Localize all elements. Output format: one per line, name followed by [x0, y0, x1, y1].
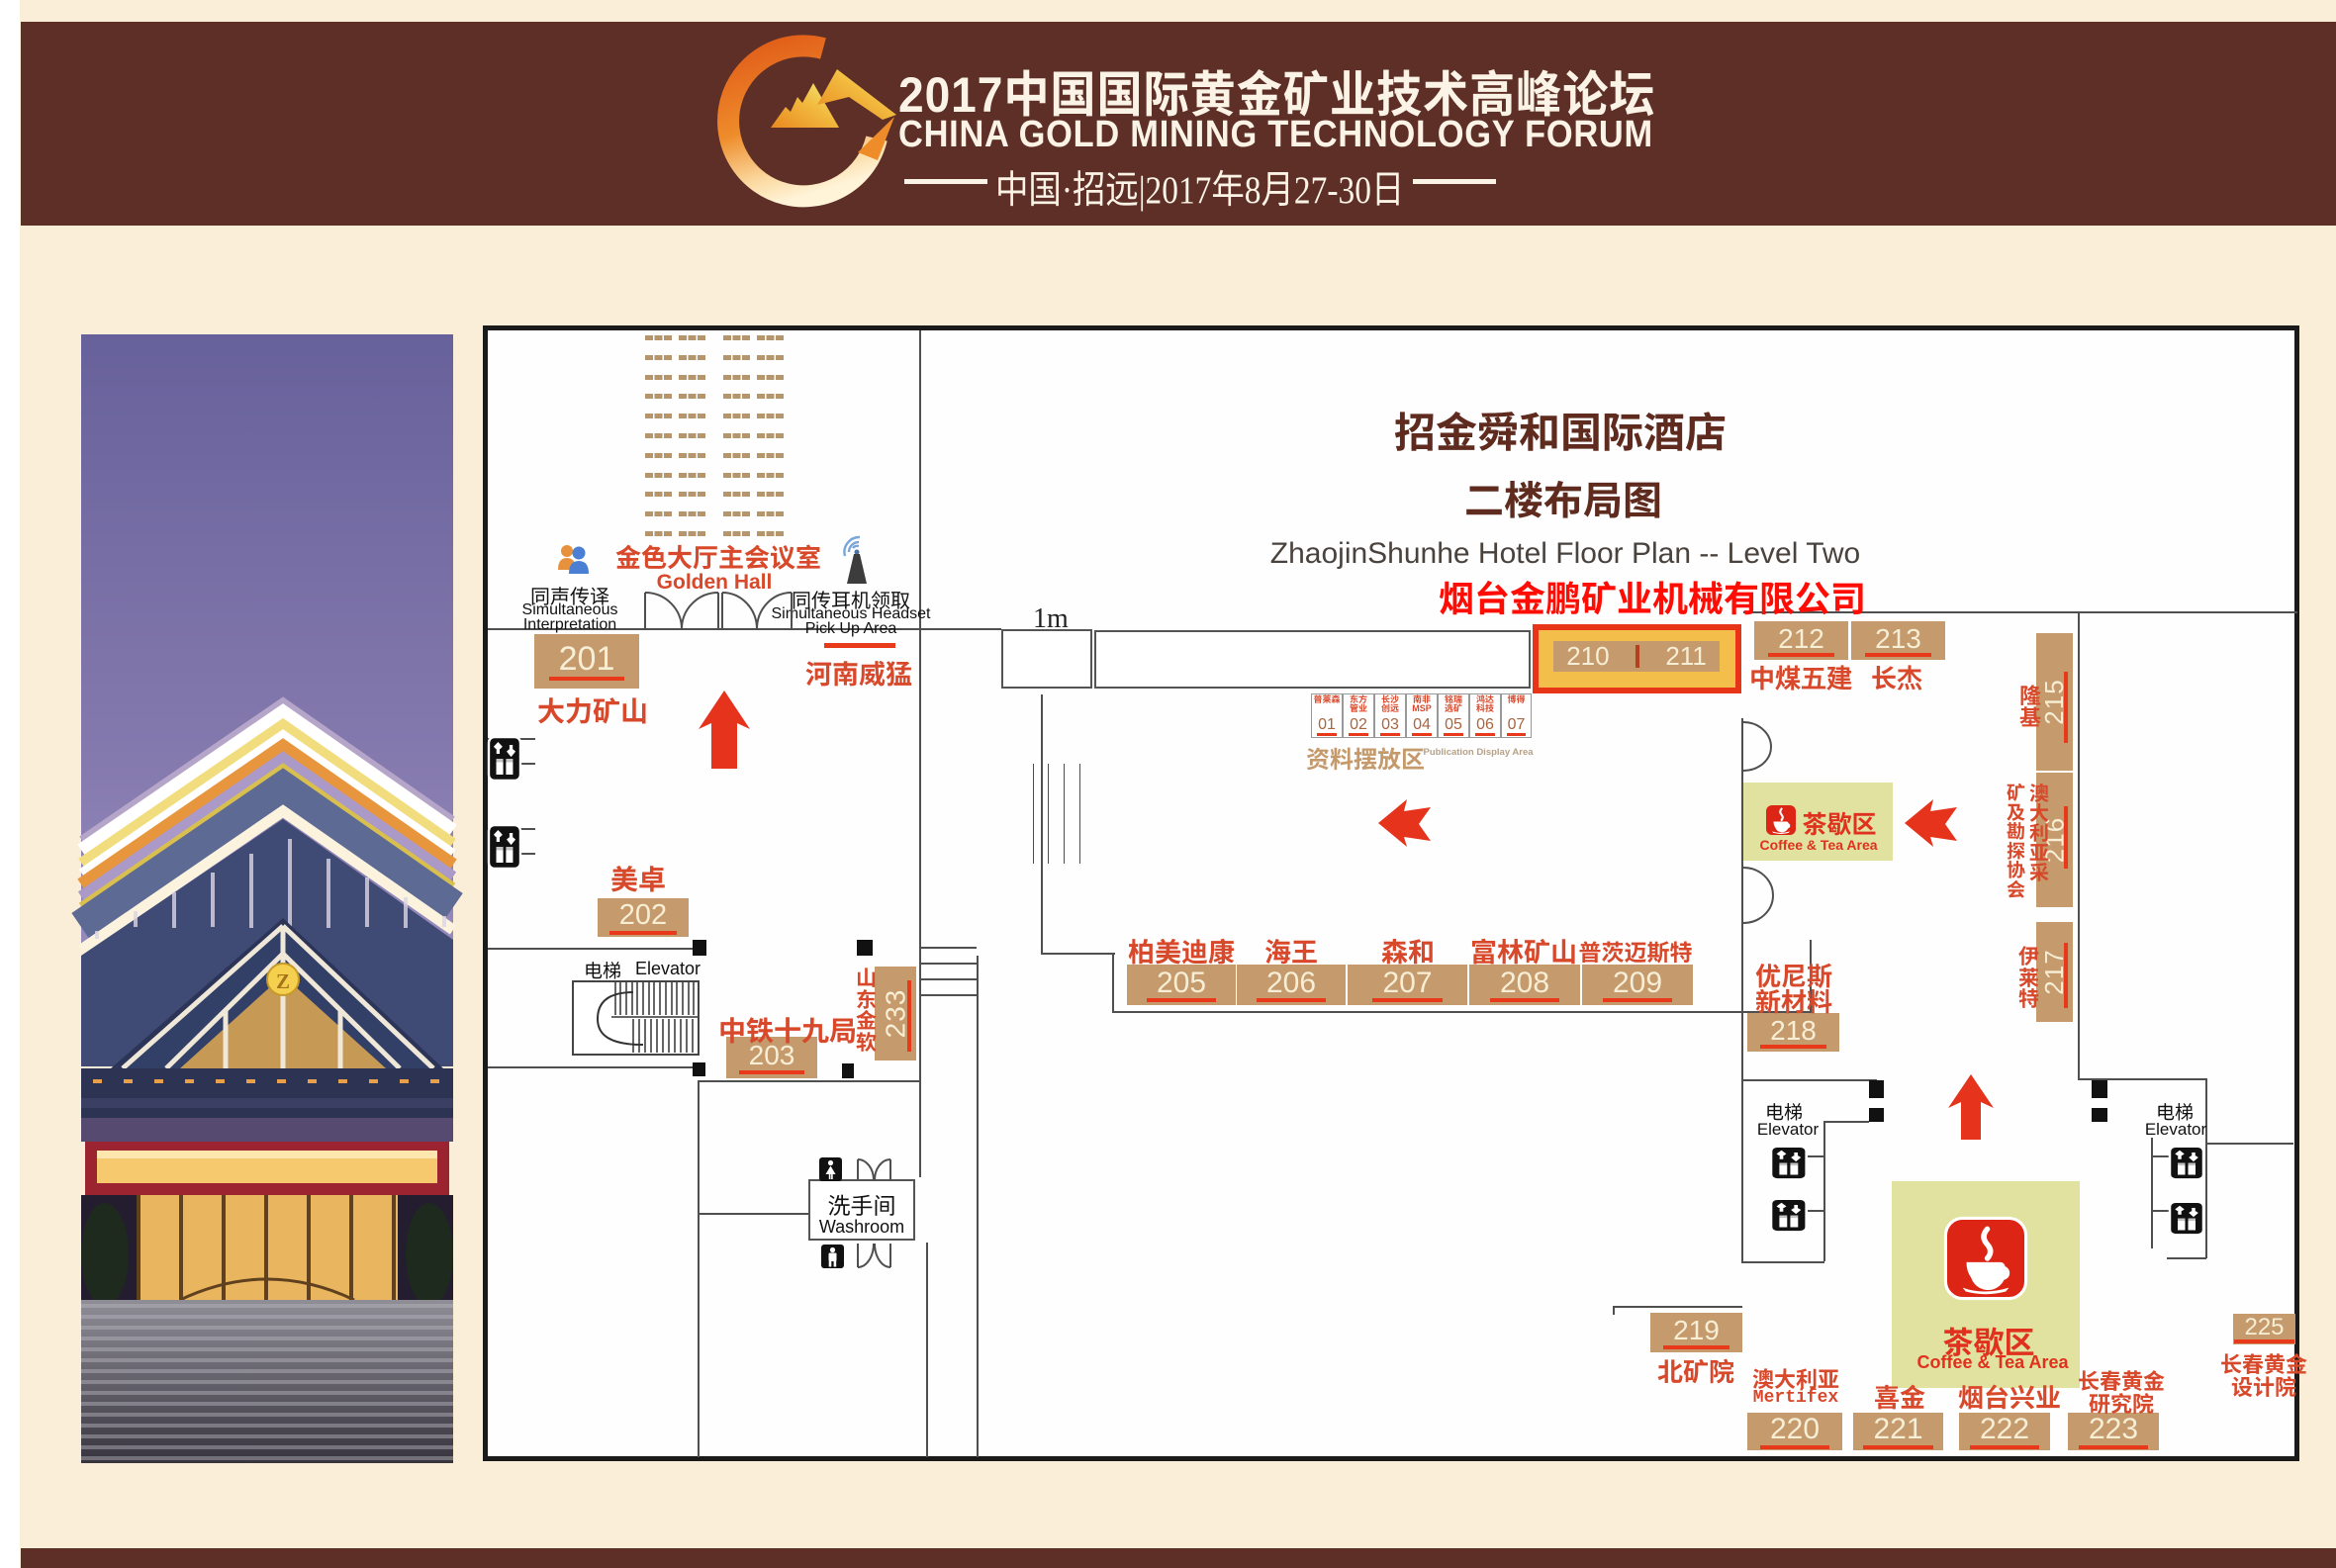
svg-text:Z: Z — [276, 969, 290, 993]
